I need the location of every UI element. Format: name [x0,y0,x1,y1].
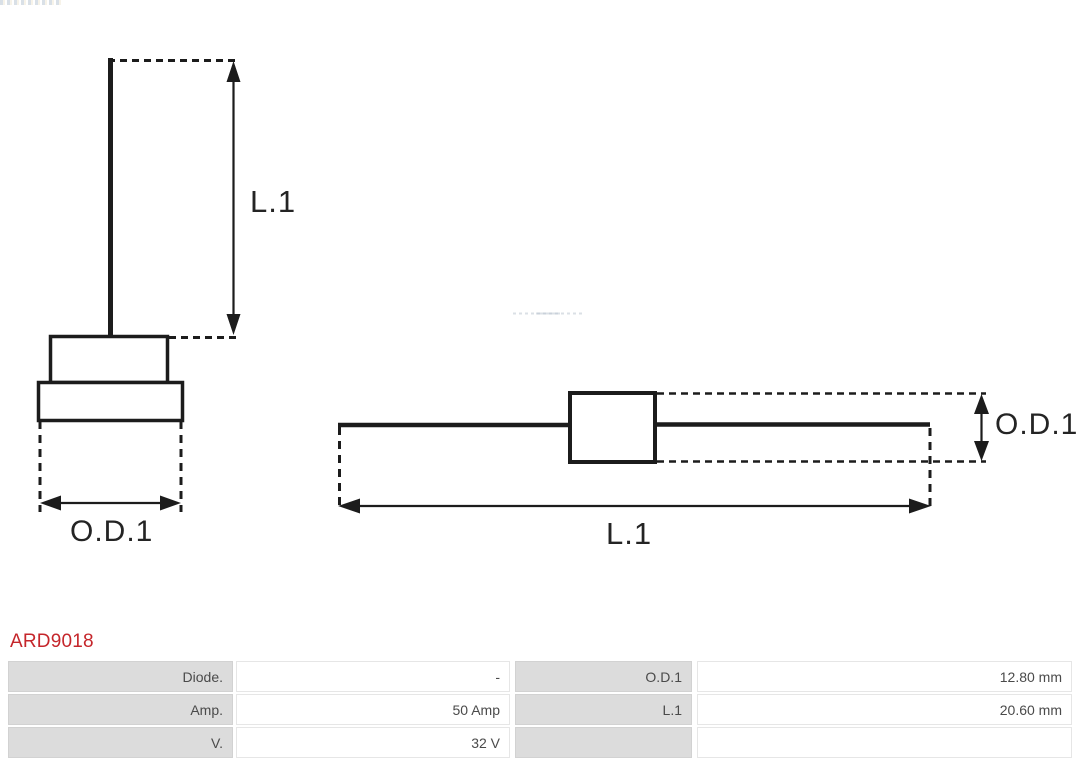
spec-label-od1: O.D.1 [515,661,692,692]
right-figure-diameter-label: O.D.1 [995,410,1078,440]
spec-value-od1: 12.80 mm [697,661,1072,692]
right-figure-length-label: L.1 [606,518,652,549]
left-figure-od1-arrowhead-left [40,496,61,511]
spec-table: Diode. - O.D.1 12.80 mm Amp. 50 Amp L.1 … [8,661,1072,760]
spec-label-l1: L.1 [515,694,692,725]
spec-value-empty [697,727,1072,758]
right-figure-od1-arrowhead-bottom [974,441,989,461]
spec-label-amp: Amp. [8,694,233,725]
spec-label-voltage: V. [8,727,233,758]
right-figure-od1-arrowhead-top [974,394,989,414]
right-figure-l1-arrowhead-right [909,499,931,514]
part-number: ARD9018 [10,631,94,653]
right-figure-body [570,393,655,462]
left-figure-length-label: L.1 [250,186,296,217]
diode-dimension-diagram: L.1 O.D.1 O.D.1 L.1 [0,0,1080,620]
left-figure-l1-arrowhead-top [227,61,241,82]
table-row: Diode. - O.D.1 12.80 mm [8,661,1072,692]
spec-value-amp: 50 Amp [236,694,510,725]
spec-value-l1: 20.60 mm [697,694,1072,725]
left-figure-body-top [51,337,168,383]
left-figure-body-bottom [39,383,183,421]
table-row: Amp. 50 Amp L.1 20.60 mm [8,694,1072,725]
left-figure-diameter-label: O.D.1 [70,517,153,547]
spec-value-voltage: 32 V [236,727,510,758]
left-figure-l1-arrowhead-bottom [227,314,241,335]
diagram-linework [0,0,1080,620]
spec-value-diode: - [236,661,510,692]
spec-label-diode: Diode. [8,661,233,692]
right-figure-l1-arrowhead-left [338,499,360,514]
left-figure-od1-arrowhead-right [160,496,181,511]
table-row: V. 32 V [8,727,1072,758]
spec-label-empty [515,727,692,758]
